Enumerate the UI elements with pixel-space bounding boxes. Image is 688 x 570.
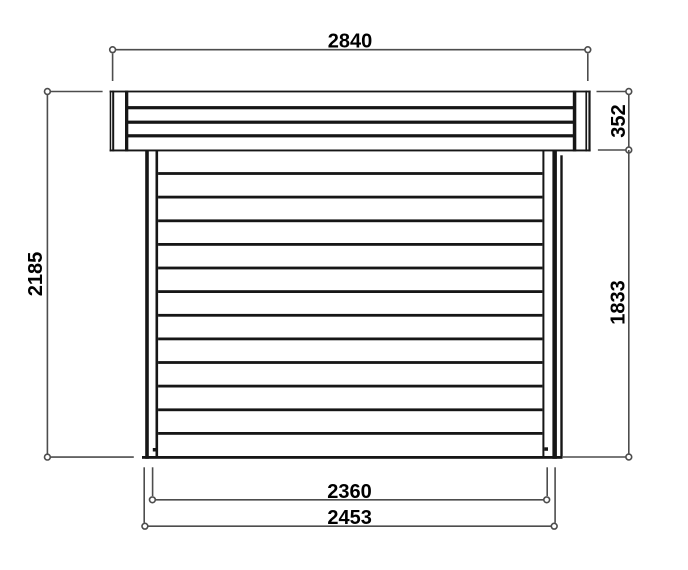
svg-text:2185: 2185	[25, 252, 47, 297]
svg-text:2360: 2360	[327, 481, 372, 503]
svg-text:2453: 2453	[327, 507, 372, 529]
svg-text:1833: 1833	[608, 280, 630, 325]
svg-text:2840: 2840	[328, 30, 373, 52]
svg-text:352: 352	[608, 104, 630, 137]
